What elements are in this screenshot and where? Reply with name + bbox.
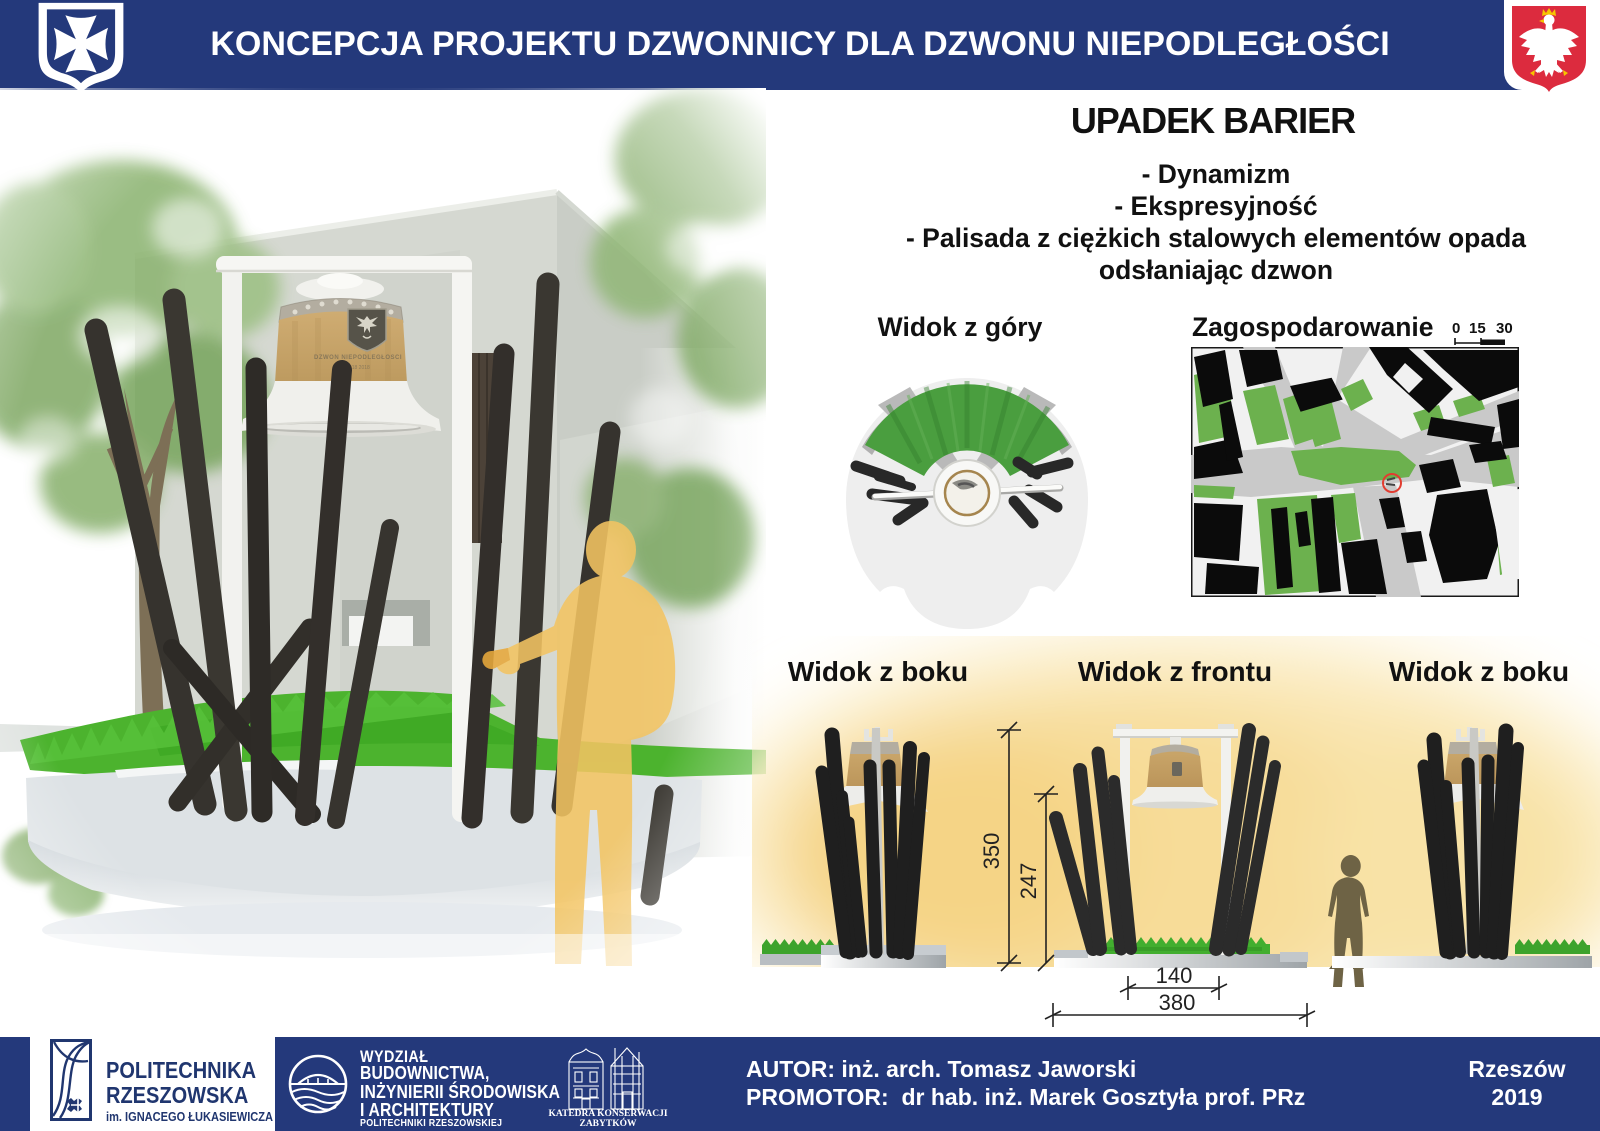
svg-text:247: 247 (1016, 863, 1041, 900)
svg-text:30: 30 (1496, 320, 1513, 337)
svg-text:380: 380 (1159, 990, 1196, 1015)
svg-text:15: 15 (1469, 320, 1486, 337)
svg-text:350: 350 (979, 833, 1004, 870)
svg-text:0: 0 (1452, 320, 1460, 337)
svg-text:140: 140 (1156, 963, 1193, 988)
